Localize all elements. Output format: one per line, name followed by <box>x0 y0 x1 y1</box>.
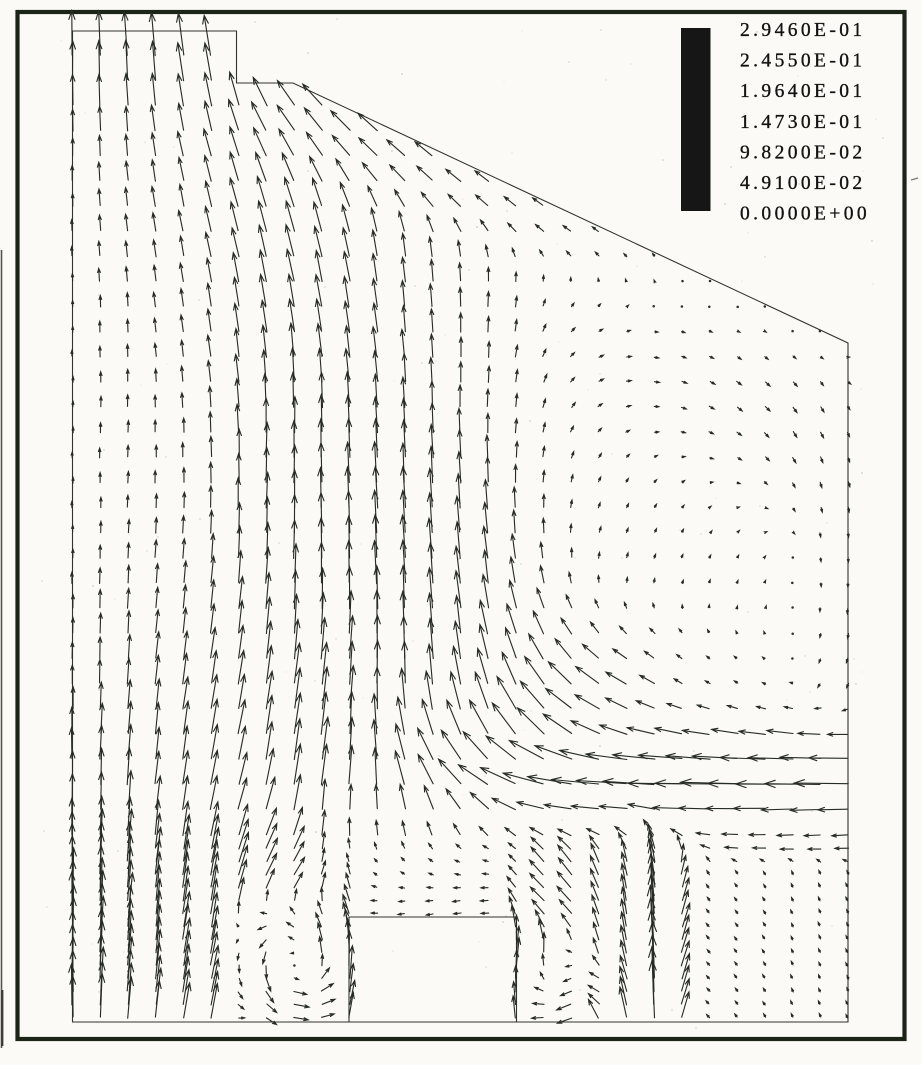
svg-text:9.8200E-02: 9.8200E-02 <box>740 142 866 163</box>
svg-text:1.4730E-01: 1.4730E-01 <box>740 112 866 133</box>
svg-text:4.9100E-02: 4.9100E-02 <box>740 173 866 194</box>
svg-text:0.0000E+00: 0.0000E+00 <box>740 204 870 225</box>
svg-text:1.9640E-01: 1.9640E-01 <box>740 81 866 102</box>
svg-text:2.4550E-01: 2.4550E-01 <box>740 51 866 72</box>
svg-text:2.9460E-01: 2.9460E-01 <box>740 20 866 41</box>
